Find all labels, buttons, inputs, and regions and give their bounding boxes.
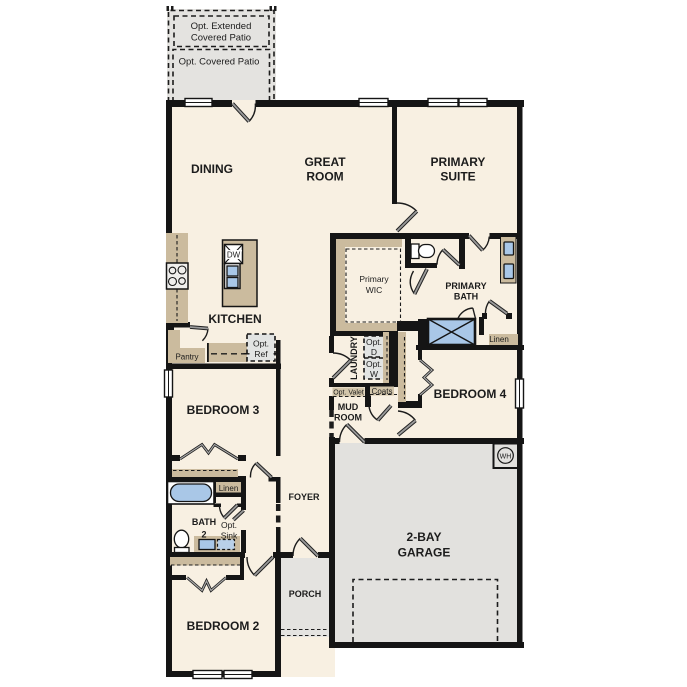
- svg-text:Opt. Extended: Opt. Extended: [191, 21, 252, 32]
- svg-text:Sink: Sink: [221, 531, 238, 541]
- svg-text:ROOM: ROOM: [334, 413, 362, 423]
- svg-text:Covered Patio: Covered Patio: [191, 33, 251, 44]
- svg-text:WH: WH: [500, 454, 512, 461]
- svg-text:KITCHEN: KITCHEN: [208, 312, 261, 326]
- svg-text:Ref: Ref: [254, 349, 268, 359]
- svg-text:Pantry: Pantry: [175, 353, 198, 362]
- svg-text:Linen: Linen: [219, 484, 239, 493]
- svg-text:MUD: MUD: [338, 402, 359, 412]
- svg-text:Opt.: Opt.: [221, 520, 237, 530]
- svg-text:BEDROOM 4: BEDROOM 4: [434, 387, 507, 401]
- svg-text:ROOM: ROOM: [306, 170, 343, 184]
- svg-text:SUITE: SUITE: [440, 170, 475, 184]
- svg-text:DW: DW: [227, 251, 241, 260]
- svg-text:LAUNDRY: LAUNDRY: [349, 336, 359, 380]
- svg-text:DINING: DINING: [191, 162, 233, 176]
- svg-text:Coats: Coats: [372, 387, 393, 396]
- svg-text:BATH: BATH: [454, 292, 478, 302]
- svg-text:D: D: [371, 347, 377, 357]
- svg-text:Primary: Primary: [359, 274, 389, 284]
- svg-text:BEDROOM 2: BEDROOM 2: [187, 619, 260, 633]
- svg-text:PRIMARY: PRIMARY: [431, 155, 486, 169]
- svg-text:PORCH: PORCH: [289, 589, 322, 599]
- svg-text:Opt.: Opt.: [366, 337, 382, 347]
- svg-text:2: 2: [201, 530, 206, 540]
- svg-text:WIC: WIC: [366, 285, 383, 295]
- svg-text:GARAGE: GARAGE: [398, 546, 451, 560]
- svg-text:BEDROOM 3: BEDROOM 3: [187, 403, 260, 417]
- svg-text:GREAT: GREAT: [304, 155, 346, 169]
- svg-text:2-BAY: 2-BAY: [407, 530, 442, 544]
- svg-text:W: W: [370, 369, 378, 379]
- svg-text:Opt. Covered Patio: Opt. Covered Patio: [179, 57, 260, 68]
- svg-text:FOYER: FOYER: [288, 492, 320, 502]
- svg-text:Linen: Linen: [489, 335, 509, 344]
- svg-text:PRIMARY: PRIMARY: [445, 281, 486, 291]
- svg-text:Opt. Valet: Opt. Valet: [333, 390, 364, 397]
- svg-text:BATH: BATH: [192, 517, 216, 527]
- svg-text:Opt.: Opt.: [253, 339, 269, 349]
- svg-text:Opt.: Opt.: [366, 359, 382, 369]
